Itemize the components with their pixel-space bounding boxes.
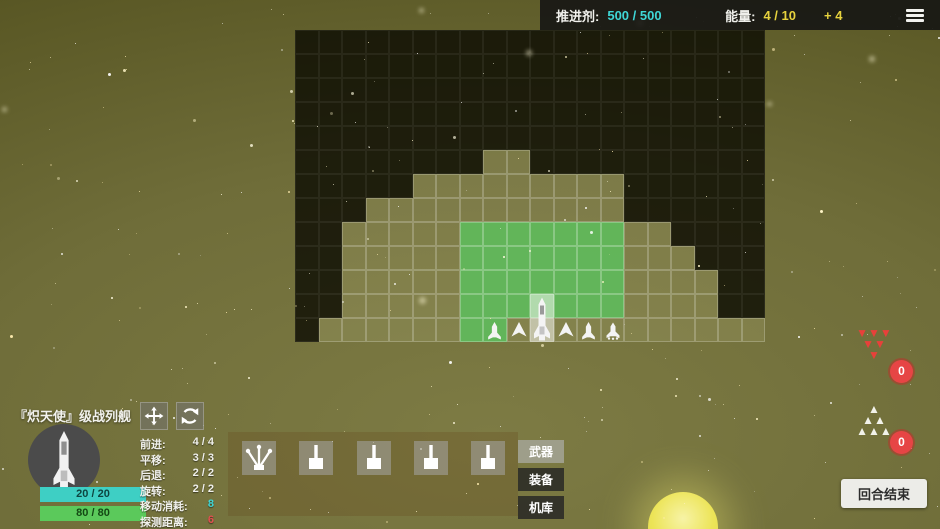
grid-cell[interactable]	[648, 246, 672, 270]
grid-cell[interactable]	[483, 198, 507, 222]
grid-cell[interactable]	[554, 150, 578, 174]
grid-cell[interactable]	[389, 198, 413, 222]
grid-cell[interactable]	[742, 318, 766, 342]
grid-cell[interactable]	[695, 102, 719, 126]
weapon-turret-icon	[414, 441, 448, 475]
grid-cell[interactable]	[413, 102, 437, 126]
grid-cell[interactable]	[577, 174, 601, 198]
grid-cell[interactable]	[342, 222, 366, 246]
grid-cell[interactable]	[648, 54, 672, 78]
grid-cell[interactable]	[507, 270, 531, 294]
ship-rocket[interactable]	[487, 322, 502, 340]
grid-cell[interactable]	[483, 78, 507, 102]
grid-cell[interactable]	[366, 318, 390, 342]
grid-cell[interactable]	[436, 174, 460, 198]
stat-label: 平移:	[140, 455, 166, 467]
grid-cell[interactable]	[554, 102, 578, 126]
game-screen: 推进剂: 500 / 500 能量: 4 / 10 + 4 ▼▼▼▼▼▼ 0 ▲…	[0, 0, 940, 529]
grid-cell[interactable]	[389, 270, 413, 294]
grid-cell[interactable]	[554, 30, 578, 54]
grid-cell[interactable]	[389, 174, 413, 198]
grid-cell[interactable]	[695, 150, 719, 174]
grid-cell[interactable]	[648, 102, 672, 126]
grid-cell[interactable]	[624, 54, 648, 78]
ship-shuttle[interactable]	[532, 297, 552, 342]
grid-cell[interactable]	[601, 102, 625, 126]
grid-cell[interactable]	[436, 126, 460, 150]
tab-机库[interactable]: 机库	[518, 496, 564, 519]
rotate-icon	[179, 405, 201, 427]
grid-cell[interactable]	[319, 246, 343, 270]
grid-cell[interactable]	[319, 78, 343, 102]
grid-cell[interactable]	[319, 318, 343, 342]
grid-cell[interactable]	[671, 222, 695, 246]
grid-cell[interactable]	[671, 294, 695, 318]
stat-row: 平移:3 / 3	[140, 452, 214, 468]
grid-cell[interactable]	[507, 294, 531, 318]
grid-cell[interactable]	[718, 78, 742, 102]
grid-cell[interactable]	[624, 318, 648, 342]
grid-cell[interactable]	[601, 198, 625, 222]
grid-cell[interactable]	[460, 126, 484, 150]
grid-cell[interactable]	[718, 126, 742, 150]
grid-cell[interactable]	[718, 174, 742, 198]
grid-cell[interactable]	[460, 222, 484, 246]
grid-cell[interactable]	[742, 294, 766, 318]
grid-cell[interactable]	[624, 102, 648, 126]
grid-cell[interactable]	[413, 174, 437, 198]
grid-cell[interactable]	[530, 54, 554, 78]
grid-cell[interactable]	[577, 294, 601, 318]
grid-cell[interactable]	[742, 102, 766, 126]
grid-cell[interactable]	[648, 318, 672, 342]
grid-cell[interactable]	[483, 54, 507, 78]
grid-cell[interactable]	[530, 150, 554, 174]
grid-cell[interactable]	[601, 54, 625, 78]
grid-cell[interactable]	[389, 318, 413, 342]
grid-cell[interactable]	[648, 78, 672, 102]
grid-cell[interactable]	[554, 54, 578, 78]
grid-cell[interactable]	[413, 270, 437, 294]
grid-cell[interactable]	[648, 126, 672, 150]
energy-group: 能量: 4 / 10 + 4	[725, 6, 842, 25]
grid-cell[interactable]	[366, 126, 390, 150]
grid-cell[interactable]	[342, 198, 366, 222]
grid-cell[interactable]	[695, 126, 719, 150]
grid-cell[interactable]	[460, 150, 484, 174]
rotate-mode-button[interactable]	[176, 402, 204, 430]
grid-cell[interactable]	[601, 174, 625, 198]
grid-cell[interactable]	[577, 78, 601, 102]
grid-cell[interactable]	[695, 318, 719, 342]
grid-cell[interactable]	[483, 294, 507, 318]
ship-title: 『炽天使』级战列舰	[14, 406, 131, 425]
grid-cell[interactable]	[319, 174, 343, 198]
grid-cell[interactable]	[648, 174, 672, 198]
grid-cell[interactable]	[530, 198, 554, 222]
grid-cell[interactable]	[319, 150, 343, 174]
grid-cell[interactable]	[366, 78, 390, 102]
grid-cell[interactable]	[295, 54, 319, 78]
grid-cell[interactable]	[695, 294, 719, 318]
end-turn-button[interactable]: 回合结束	[841, 479, 927, 508]
grid-cell[interactable]	[695, 54, 719, 78]
grid-cell[interactable]	[648, 198, 672, 222]
grid-cell[interactable]	[718, 222, 742, 246]
grid-cell[interactable]	[483, 222, 507, 246]
grid-cell[interactable]	[436, 246, 460, 270]
grid-cell[interactable]	[601, 150, 625, 174]
grid-cell[interactable]	[601, 78, 625, 102]
grid-cell[interactable]	[366, 150, 390, 174]
grid-cell[interactable]	[530, 78, 554, 102]
grid-cell[interactable]	[577, 198, 601, 222]
battle-grid[interactable]	[295, 30, 765, 342]
grid-cell[interactable]	[718, 30, 742, 54]
grid-cell[interactable]	[601, 270, 625, 294]
grid-cell[interactable]	[601, 30, 625, 54]
grid-cell[interactable]	[295, 198, 319, 222]
grid-cell[interactable]	[695, 246, 719, 270]
stat-label: 后退:	[140, 470, 166, 482]
grid-cell[interactable]	[718, 150, 742, 174]
grid-cell[interactable]	[460, 294, 484, 318]
grid-cell[interactable]	[483, 102, 507, 126]
grid-cell[interactable]	[577, 102, 601, 126]
grid-cell[interactable]	[671, 126, 695, 150]
shield-bar: 80 / 80	[40, 506, 146, 521]
grid-cell[interactable]	[624, 294, 648, 318]
weapon-turret-icon	[471, 441, 505, 475]
grid-cell[interactable]	[413, 294, 437, 318]
ship-triangle[interactable]	[558, 322, 574, 337]
grid-cell[interactable]	[577, 126, 601, 150]
grid-cell[interactable]	[671, 30, 695, 54]
grid-cell[interactable]	[671, 270, 695, 294]
grid-cell[interactable]	[342, 150, 366, 174]
grid-cell[interactable]	[342, 78, 366, 102]
grid-cell[interactable]	[436, 54, 460, 78]
grid-cell[interactable]	[319, 30, 343, 54]
grid-cell[interactable]	[624, 126, 648, 150]
grid-cell[interactable]	[742, 198, 766, 222]
grid-cell[interactable]	[436, 30, 460, 54]
stat-row: 旋转:2 / 2	[140, 483, 214, 499]
grid-cell[interactable]	[530, 246, 554, 270]
grid-cell[interactable]	[389, 294, 413, 318]
grid-cell[interactable]	[342, 270, 366, 294]
grid-cell[interactable]	[389, 150, 413, 174]
grid-cell[interactable]	[507, 54, 531, 78]
grid-cell[interactable]	[695, 174, 719, 198]
grid-cell[interactable]	[483, 246, 507, 270]
ship-triangle[interactable]	[511, 322, 527, 337]
grid-cell[interactable]	[366, 270, 390, 294]
grid-cell[interactable]	[671, 150, 695, 174]
grid-cell[interactable]	[436, 294, 460, 318]
tab-武器[interactable]: 武器	[518, 440, 564, 463]
grid-cell[interactable]	[460, 102, 484, 126]
grid-cell[interactable]	[601, 126, 625, 150]
energy-label: 能量:	[725, 6, 755, 25]
grid-cell[interactable]	[671, 54, 695, 78]
grid-cell[interactable]	[413, 198, 437, 222]
grid-cell[interactable]	[366, 30, 390, 54]
weapon-costs	[461, 476, 515, 490]
grid-cell[interactable]	[436, 150, 460, 174]
weapon-turret-icon	[299, 441, 333, 475]
grid-cell[interactable]	[413, 246, 437, 270]
grid-cell[interactable]	[530, 126, 554, 150]
weapon-slot-1[interactable]	[230, 433, 288, 515]
grid-cell[interactable]	[530, 174, 554, 198]
grid-cell[interactable]	[671, 198, 695, 222]
grid-cell[interactable]	[460, 246, 484, 270]
grid-cell[interactable]	[413, 222, 437, 246]
grid-cell[interactable]	[436, 198, 460, 222]
grid-cell[interactable]	[507, 198, 531, 222]
grid-cell[interactable]	[460, 30, 484, 54]
grid-cell[interactable]	[648, 222, 672, 246]
grid-cell[interactable]	[436, 78, 460, 102]
grid-cell[interactable]	[342, 246, 366, 270]
grid-cell[interactable]	[436, 102, 460, 126]
weapon-slot-5[interactable]	[461, 433, 515, 515]
grid-cell[interactable]	[554, 198, 578, 222]
grid-cell[interactable]	[295, 294, 319, 318]
grid-cell[interactable]	[554, 222, 578, 246]
grid-cell[interactable]	[507, 174, 531, 198]
grid-cell[interactable]	[601, 246, 625, 270]
move-mode-button[interactable]	[140, 402, 168, 430]
grid-cell[interactable]	[295, 126, 319, 150]
grid-cell[interactable]	[671, 78, 695, 102]
grid-cell[interactable]	[530, 102, 554, 126]
grid-cell[interactable]	[507, 150, 531, 174]
grid-cell[interactable]	[366, 294, 390, 318]
grid-cell[interactable]	[366, 222, 390, 246]
grid-cell[interactable]	[742, 246, 766, 270]
grid-cell[interactable]	[389, 30, 413, 54]
grid-cell[interactable]	[742, 270, 766, 294]
grid-cell[interactable]	[671, 174, 695, 198]
grid-cell[interactable]	[742, 174, 766, 198]
grid-cell[interactable]	[366, 102, 390, 126]
grid-cell[interactable]	[742, 30, 766, 54]
grid-cell[interactable]	[483, 30, 507, 54]
grid-cell[interactable]	[413, 30, 437, 54]
grid-cell[interactable]	[507, 246, 531, 270]
grid-cell[interactable]	[389, 246, 413, 270]
grid-cell[interactable]	[460, 318, 484, 342]
grid-cell[interactable]	[671, 246, 695, 270]
grid-cell[interactable]	[342, 30, 366, 54]
grid-cell[interactable]	[530, 222, 554, 246]
grid-cell[interactable]	[460, 270, 484, 294]
grid-cell[interactable]	[507, 102, 531, 126]
grid-cell[interactable]	[319, 54, 343, 78]
grid-cell[interactable]	[436, 270, 460, 294]
enemy-fleet-marker[interactable]: ▼▼▼▼▼▼	[846, 328, 902, 361]
grid-cell[interactable]	[577, 246, 601, 270]
grid-cell[interactable]	[624, 246, 648, 270]
grid-cell[interactable]	[295, 30, 319, 54]
grid-cell[interactable]	[577, 222, 601, 246]
grid-cell[interactable]	[342, 318, 366, 342]
grid-cell[interactable]	[413, 54, 437, 78]
grid-cell[interactable]	[695, 198, 719, 222]
grid-cell[interactable]	[413, 150, 437, 174]
grid-cell[interactable]	[554, 126, 578, 150]
grid-cell[interactable]	[413, 126, 437, 150]
grid-cell[interactable]	[624, 174, 648, 198]
stat-row: 后退:2 / 2	[140, 467, 214, 483]
ally-fleet-count-badge: 0	[890, 431, 913, 454]
ally-fleet-marker[interactable]: ▲▲▲▲▲▲	[846, 404, 902, 437]
ship-avatar	[28, 424, 100, 496]
stat-label: 旋转:	[140, 486, 166, 498]
grid-cell[interactable]	[718, 102, 742, 126]
hamburger-menu-icon[interactable]	[906, 9, 924, 22]
grid-cell[interactable]	[577, 54, 601, 78]
grid-cell[interactable]	[436, 222, 460, 246]
grid-cell[interactable]	[695, 270, 719, 294]
grid-cell[interactable]	[718, 270, 742, 294]
grid-cell[interactable]	[718, 198, 742, 222]
grid-cell[interactable]	[624, 198, 648, 222]
grid-cell[interactable]	[389, 78, 413, 102]
weapon-slot-2[interactable]	[289, 433, 343, 515]
grid-cell[interactable]	[342, 294, 366, 318]
grid-cell[interactable]	[483, 174, 507, 198]
grid-cell[interactable]	[577, 270, 601, 294]
grid-cell[interactable]	[507, 222, 531, 246]
grid-cell[interactable]	[389, 102, 413, 126]
grid-cell[interactable]	[342, 174, 366, 198]
grid-cell[interactable]	[295, 270, 319, 294]
grid-cell[interactable]	[671, 318, 695, 342]
grid-cell[interactable]	[483, 270, 507, 294]
grid-cell[interactable]	[742, 222, 766, 246]
grid-cell[interactable]	[295, 102, 319, 126]
grid-cell[interactable]	[507, 30, 531, 54]
grid-cell[interactable]	[342, 54, 366, 78]
grid-cell[interactable]	[695, 30, 719, 54]
grid-cell[interactable]	[742, 126, 766, 150]
propellant-group: 推进剂: 500 / 500	[556, 6, 662, 25]
grid-cell[interactable]	[319, 198, 343, 222]
grid-cell[interactable]	[742, 150, 766, 174]
weapon-slot-4[interactable]	[404, 433, 458, 515]
stat-value: 2 / 2	[193, 483, 214, 495]
grid-cell[interactable]	[389, 54, 413, 78]
ship-booster[interactable]	[605, 322, 621, 340]
grid-cell[interactable]	[413, 318, 437, 342]
grid-cell[interactable]	[742, 54, 766, 78]
grid-cell[interactable]	[530, 270, 554, 294]
grid-cell[interactable]	[483, 126, 507, 150]
grid-cell[interactable]	[483, 150, 507, 174]
grid-cell[interactable]	[460, 198, 484, 222]
grid-cell[interactable]	[601, 294, 625, 318]
grid-cell[interactable]	[389, 126, 413, 150]
grid-cell[interactable]	[507, 126, 531, 150]
grid-cell[interactable]	[319, 222, 343, 246]
weapon-slot-3[interactable]	[347, 433, 401, 515]
grid-cell[interactable]	[742, 78, 766, 102]
grid-cell[interactable]	[460, 54, 484, 78]
grid-cell[interactable]	[718, 294, 742, 318]
grid-cell[interactable]	[718, 318, 742, 342]
grid-cell[interactable]	[389, 222, 413, 246]
grid-cell[interactable]	[695, 78, 719, 102]
grid-cell[interactable]	[601, 222, 625, 246]
ship-rocket[interactable]	[581, 322, 596, 340]
grid-cell[interactable]	[554, 246, 578, 270]
weapon-costs	[404, 476, 458, 490]
grid-cell[interactable]	[648, 30, 672, 54]
grid-cell[interactable]	[648, 150, 672, 174]
grid-cell[interactable]	[319, 294, 343, 318]
grid-cell[interactable]	[460, 78, 484, 102]
grid-cell[interactable]	[624, 222, 648, 246]
grid-cell[interactable]	[295, 150, 319, 174]
sun-planet	[648, 492, 718, 529]
grid-cell[interactable]	[366, 174, 390, 198]
grid-cell[interactable]	[436, 318, 460, 342]
grid-cell[interactable]	[295, 222, 319, 246]
grid-cell[interactable]	[554, 294, 578, 318]
tab-装备[interactable]: 装备	[518, 468, 564, 491]
grid-cell[interactable]	[460, 174, 484, 198]
grid-cell[interactable]	[671, 102, 695, 126]
grid-cell[interactable]	[554, 174, 578, 198]
grid-cell[interactable]	[648, 270, 672, 294]
grid-cell[interactable]	[554, 270, 578, 294]
grid-cell[interactable]	[295, 174, 319, 198]
grid-cell[interactable]	[295, 78, 319, 102]
grid-cell[interactable]	[530, 30, 554, 54]
energy-bonus: + 4	[824, 8, 842, 23]
grid-cell[interactable]	[366, 54, 390, 78]
grid-cell[interactable]	[695, 222, 719, 246]
grid-cell[interactable]	[624, 150, 648, 174]
grid-cell[interactable]	[718, 54, 742, 78]
fleet-triangle-row: ▼	[846, 350, 902, 361]
grid-cell[interactable]	[319, 270, 343, 294]
weapon-costs	[230, 476, 288, 490]
grid-cell[interactable]	[648, 294, 672, 318]
grid-cell[interactable]	[295, 246, 319, 270]
grid-cell[interactable]	[624, 270, 648, 294]
grid-cell[interactable]	[554, 78, 578, 102]
grid-cell[interactable]	[366, 198, 390, 222]
grid-cell[interactable]	[624, 30, 648, 54]
grid-cell[interactable]	[577, 150, 601, 174]
grid-cell[interactable]	[319, 102, 343, 126]
grid-cell[interactable]	[577, 30, 601, 54]
stat-row: 前进:4 / 4	[140, 436, 214, 452]
grid-cell[interactable]	[342, 126, 366, 150]
grid-cell[interactable]	[319, 126, 343, 150]
grid-cell[interactable]	[366, 246, 390, 270]
grid-cell[interactable]	[507, 78, 531, 102]
grid-cell[interactable]	[413, 78, 437, 102]
grid-cell[interactable]	[718, 246, 742, 270]
grid-cell[interactable]	[295, 318, 319, 342]
grid-cell[interactable]	[624, 78, 648, 102]
grid-cell[interactable]	[342, 102, 366, 126]
